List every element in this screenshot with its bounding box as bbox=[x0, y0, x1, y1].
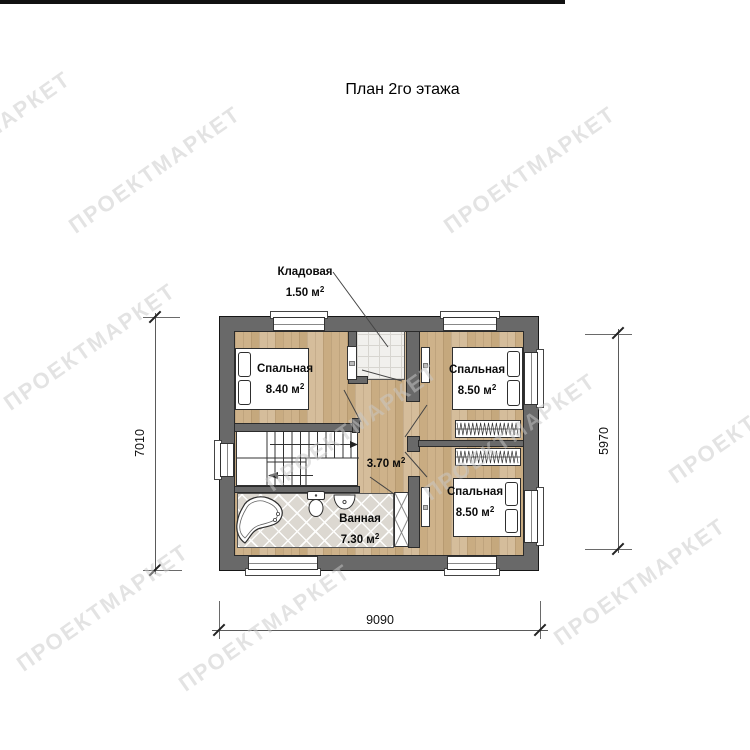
dim-ext bbox=[540, 601, 541, 639]
dim-ext bbox=[143, 570, 182, 571]
wardrobe-zigzag bbox=[456, 421, 520, 437]
top-border-strip bbox=[0, 0, 565, 4]
watermark-text: ПРОЕКТМАРКЕТ bbox=[664, 351, 750, 489]
storage-label: Кладовая 1.50 м2 bbox=[245, 263, 365, 302]
bedroom-bottom-right-label: Спальная 8.50 м2 bbox=[425, 483, 525, 522]
wall-wardrobe-divider bbox=[418, 440, 524, 447]
floor-plan-page: План 2го этажа Кладовая 1.50 м2 bbox=[0, 0, 750, 750]
window-bottom-right bbox=[447, 556, 497, 570]
watermark-text: ПРОЕКТМАРКЕТ bbox=[549, 513, 731, 651]
dim-left-value: 7010 bbox=[133, 429, 147, 457]
door-bedroom-top-left bbox=[347, 346, 357, 380]
bedroom-top-right-label: Спальная 8.50 м2 bbox=[427, 361, 527, 400]
watermark-text: ПРОЕКТМАРКЕТ bbox=[174, 559, 356, 697]
watermark-text: ПРОЕКТМАРКЕТ bbox=[12, 539, 194, 677]
dim-line-left bbox=[155, 313, 156, 574]
dim-ext bbox=[585, 334, 632, 335]
stairs-up-arrow bbox=[350, 441, 358, 448]
hall-label: 3.70 м2 bbox=[336, 452, 436, 473]
sink bbox=[333, 494, 356, 510]
wall-bedroom1-stairs bbox=[234, 423, 360, 432]
dim-right-value: 5970 bbox=[597, 427, 611, 455]
wardrobe-zigzag bbox=[456, 449, 520, 465]
wall-stairs-bathroom bbox=[234, 486, 360, 493]
watermark-text: ПРОЕКТМАРКЕТ bbox=[0, 66, 76, 204]
wall-hall-right-top bbox=[406, 331, 420, 402]
bedroom-top-left-label: Спальная 8.40 м2 bbox=[235, 360, 335, 399]
page-title: План 2го этажа bbox=[280, 81, 525, 99]
dim-ext bbox=[143, 317, 180, 318]
window-right-bottom bbox=[524, 490, 538, 543]
window-left bbox=[220, 443, 234, 477]
dim-line-bottom bbox=[212, 630, 548, 631]
dim-bottom-value: 9090 bbox=[340, 613, 420, 627]
storage-area: 1.50 м2 bbox=[245, 281, 365, 302]
storage-name: Кладовая bbox=[245, 263, 365, 281]
storage-floor bbox=[356, 331, 405, 380]
window-top-left bbox=[273, 317, 325, 331]
stairs-down-arrow bbox=[268, 472, 278, 479]
bathroom-label: Ванная 7.30 м2 bbox=[310, 510, 410, 549]
dim-ext bbox=[219, 601, 220, 639]
dim-line-right bbox=[618, 329, 619, 553]
watermark-text: ПРОЕКТМАРКЕТ bbox=[439, 101, 621, 239]
wardrobe-bottom bbox=[455, 448, 521, 466]
window-bottom-left bbox=[248, 556, 318, 570]
watermark-text: ПРОЕКТМАРКЕТ bbox=[64, 101, 246, 239]
watermark-text: ПРОЕКТМАРКЕТ bbox=[0, 278, 181, 416]
wall-bedroom1-stairs-stub bbox=[352, 418, 360, 433]
wardrobe-top bbox=[455, 420, 521, 438]
dim-ext bbox=[585, 549, 632, 550]
window-top-right bbox=[443, 317, 497, 331]
bathtub bbox=[235, 495, 287, 548]
